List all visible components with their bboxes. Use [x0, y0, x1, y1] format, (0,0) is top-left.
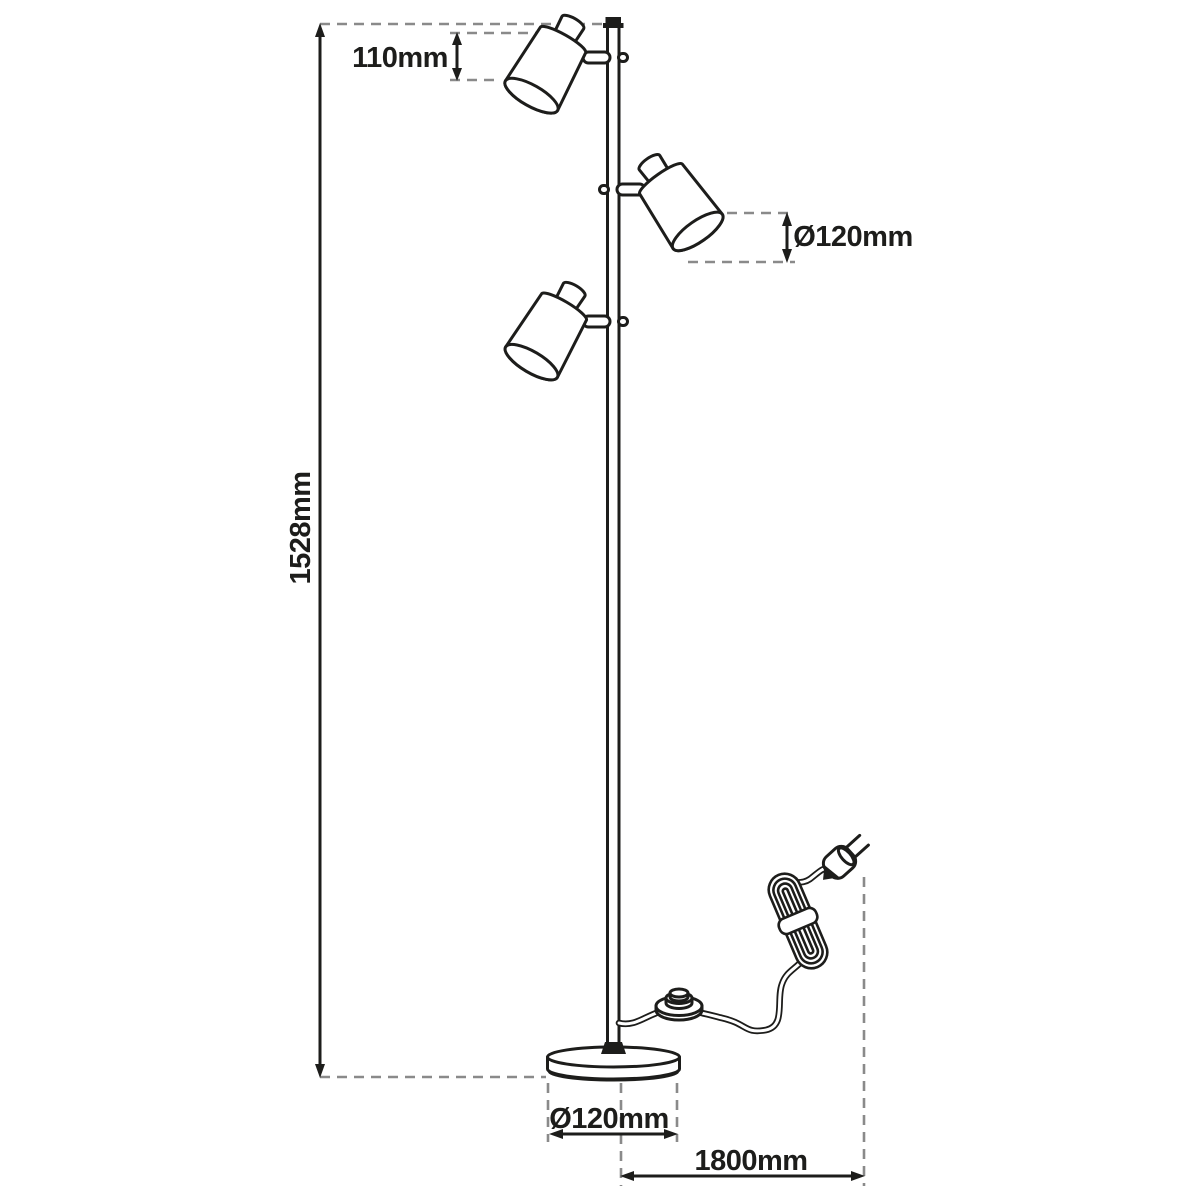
lamp-drawing: [500, 4, 873, 1080]
dim-shade-diameter: [782, 212, 792, 263]
lamp-pole: [608, 24, 620, 1050]
label-total-height: 1528mm: [285, 471, 317, 584]
label-shade-height: 110mm: [352, 42, 448, 74]
label-cable-length: 1800mm: [694, 1145, 807, 1177]
shade1-bracket: [583, 52, 610, 63]
shade1-bracket-pin: [619, 54, 628, 62]
dim-shade-height: [452, 32, 462, 81]
label-base-diameter: Ø120mm: [549, 1103, 669, 1135]
foot-switch: [656, 989, 702, 1020]
pole-base-mount: [601, 1042, 626, 1054]
dimension-labels: 110mm Ø120mm 1528mm Ø120mm 1800mm: [285, 42, 913, 1177]
lamp-shade-3: [500, 271, 602, 387]
lamp-base: [548, 1042, 680, 1080]
cable-coil: [760, 867, 836, 975]
lamp-shade-2: [622, 142, 728, 258]
floor-lamp-dimension-diagram: 110mm Ø120mm 1528mm Ø120mm 1800mm: [0, 0, 1200, 1200]
diagram-canvas: 110mm Ø120mm 1528mm Ø120mm 1800mm: [0, 0, 1200, 1200]
label-shade-diameter: Ø120mm: [793, 221, 913, 253]
shade2-bracket-pin: [600, 186, 609, 194]
shade3-bracket-pin: [619, 318, 628, 326]
pole-top-cap: [603, 17, 624, 28]
